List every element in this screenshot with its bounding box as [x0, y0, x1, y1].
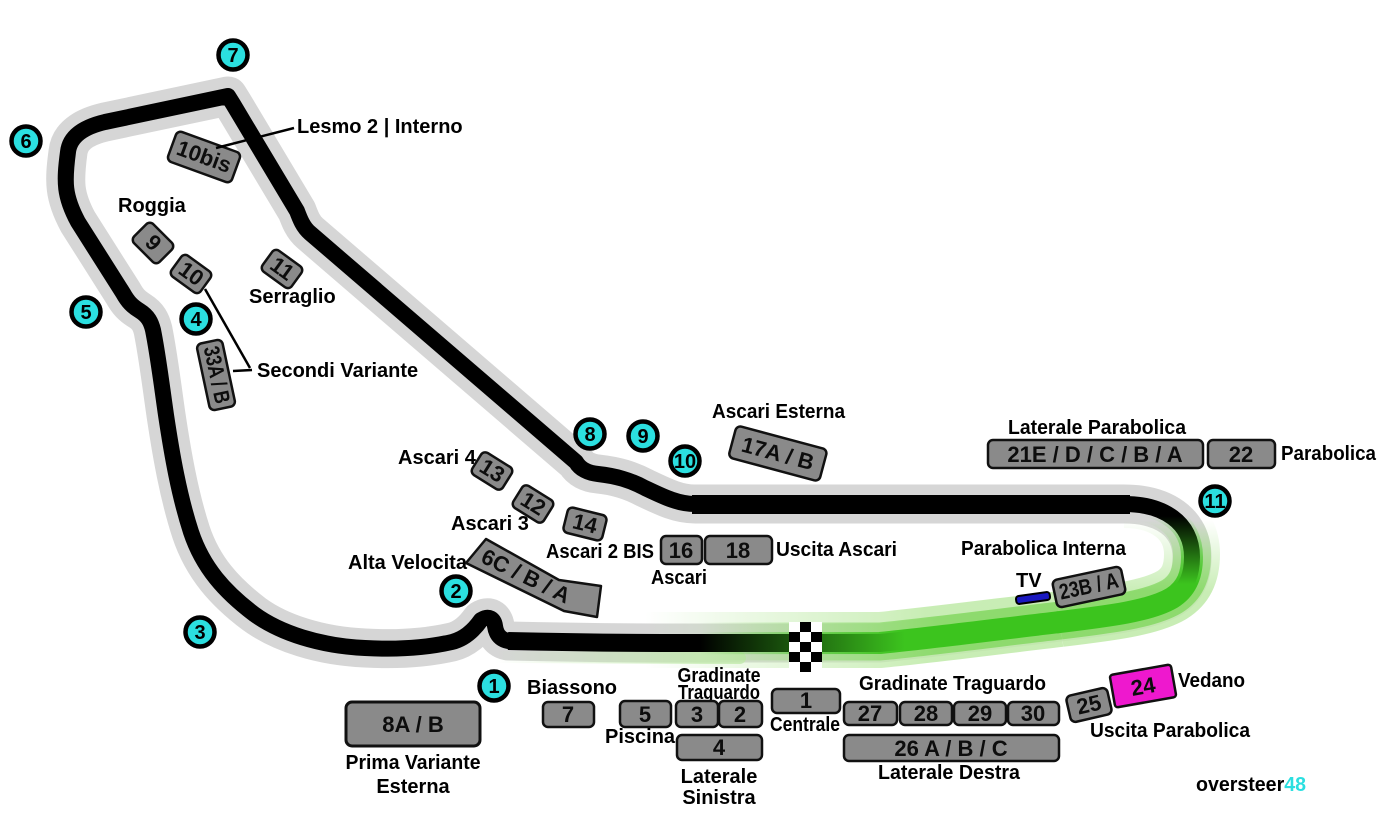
svg-text:3: 3 [194, 622, 205, 644]
svg-text:1: 1 [488, 676, 499, 698]
svg-text:Serraglio: Serraglio [249, 286, 336, 308]
svg-text:16: 16 [669, 538, 693, 563]
svg-text:10: 10 [674, 451, 696, 473]
svg-text:Vedano: Vedano [1178, 670, 1245, 692]
svg-text:Lesmo 2 | Interno: Lesmo 2 | Interno [297, 116, 463, 138]
svg-text:Parabolica Interna: Parabolica Interna [961, 538, 1127, 560]
svg-text:Uscita Ascari: Uscita Ascari [776, 539, 897, 561]
svg-text:Sinistra: Sinistra [682, 787, 756, 809]
svg-text:Esterna: Esterna [376, 776, 450, 798]
svg-text:Centrale: Centrale [770, 714, 840, 736]
svg-text:Parabolica: Parabolica [1281, 443, 1377, 465]
svg-text:Gradinate Traguardo: Gradinate Traguardo [859, 673, 1046, 695]
svg-text:Piscina: Piscina [605, 726, 676, 748]
svg-text:Ascari 3: Ascari 3 [451, 513, 529, 535]
svg-text:28: 28 [914, 701, 938, 726]
svg-text:21E / D / C / B / A: 21E / D / C / B / A [1007, 442, 1182, 467]
svg-text:Ascari 2 BIS: Ascari 2 BIS [546, 541, 654, 563]
svg-text:TV: TV [1016, 570, 1042, 592]
svg-text:8: 8 [584, 424, 595, 446]
svg-text:Alta Velocita: Alta Velocita [348, 552, 468, 574]
svg-text:24: 24 [1129, 672, 1158, 701]
svg-text:7: 7 [562, 702, 574, 727]
svg-text:oversteer48: oversteer48 [1196, 774, 1306, 796]
svg-text:26 A / B / C: 26 A / B / C [894, 736, 1007, 761]
svg-text:5: 5 [80, 302, 91, 324]
svg-text:7: 7 [227, 45, 238, 67]
svg-text:Ascari: Ascari [651, 567, 707, 589]
svg-text:6: 6 [20, 131, 31, 153]
svg-text:Prima Variante: Prima Variante [346, 752, 481, 774]
svg-text:Laterale: Laterale [681, 766, 758, 788]
svg-text:2: 2 [450, 581, 461, 603]
svg-text:Laterale Destra: Laterale Destra [878, 762, 1021, 784]
svg-text:Ascari Esterna: Ascari Esterna [712, 401, 846, 423]
svg-text:2: 2 [734, 702, 746, 727]
svg-text:Uscita Parabolica: Uscita Parabolica [1090, 720, 1251, 742]
svg-text:22: 22 [1229, 442, 1253, 467]
svg-text:30: 30 [1021, 701, 1045, 726]
svg-text:18: 18 [726, 538, 750, 563]
svg-text:4: 4 [190, 309, 202, 331]
svg-text:5: 5 [639, 702, 651, 727]
svg-text:9: 9 [637, 426, 648, 448]
svg-text:4: 4 [713, 735, 726, 760]
svg-text:Laterale Parabolica: Laterale Parabolica [1008, 417, 1187, 439]
svg-text:27: 27 [858, 701, 882, 726]
svg-text:Roggia: Roggia [118, 195, 187, 217]
svg-text:Ascari 4: Ascari 4 [398, 447, 477, 469]
svg-text:Biassono: Biassono [527, 677, 617, 699]
svg-text:11: 11 [1204, 491, 1225, 513]
svg-text:1: 1 [800, 688, 812, 713]
svg-text:Secondi Variante: Secondi Variante [257, 360, 418, 382]
svg-text:29: 29 [968, 701, 992, 726]
svg-text:8A / B: 8A / B [382, 712, 444, 737]
svg-text:3: 3 [691, 702, 703, 727]
